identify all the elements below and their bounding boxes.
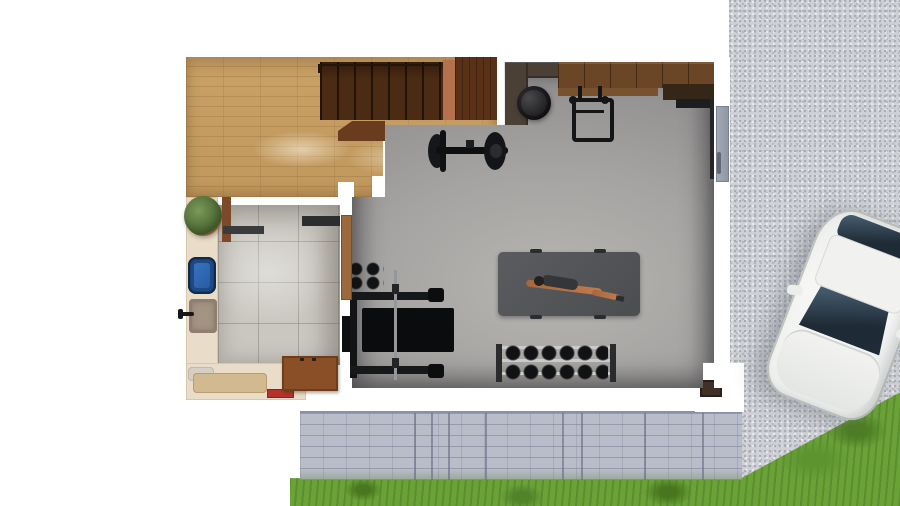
bench-press-station bbox=[342, 262, 457, 387]
staircase bbox=[320, 62, 443, 120]
rack-knob bbox=[601, 96, 609, 104]
basin-inner bbox=[191, 260, 213, 291]
mat-handle bbox=[530, 249, 542, 253]
cabinet-handle bbox=[300, 358, 304, 361]
wood-wall-post bbox=[341, 215, 352, 300]
wall-gap-patch bbox=[372, 176, 384, 197]
faucet-knob bbox=[178, 309, 183, 319]
car-mirror-right bbox=[894, 327, 900, 344]
wood-wall-post bbox=[222, 197, 231, 242]
retaining-wall bbox=[300, 411, 742, 480]
wall-gap-patch bbox=[338, 182, 354, 198]
towel-mat bbox=[193, 373, 267, 393]
wall-seam bbox=[485, 413, 487, 480]
rack-post bbox=[610, 344, 616, 382]
barbell-collar bbox=[392, 284, 399, 294]
bike-seat bbox=[490, 144, 502, 158]
person-head bbox=[534, 276, 544, 286]
wall-seam bbox=[644, 413, 646, 480]
stair-handrail bbox=[318, 64, 442, 66]
stair-handrail-post bbox=[318, 64, 321, 73]
wall-seam bbox=[562, 413, 564, 480]
rack-post bbox=[496, 344, 502, 382]
wall-seam bbox=[581, 413, 583, 480]
gym-cabinet-dark-end bbox=[663, 84, 715, 100]
small-dumbbells bbox=[348, 262, 384, 290]
upper-dark-wood-floor bbox=[455, 57, 497, 120]
j-hook bbox=[428, 288, 444, 302]
rack-knob bbox=[569, 96, 577, 104]
floor-plan-canvas bbox=[0, 0, 900, 506]
stair-copper-strip bbox=[443, 60, 455, 120]
wall-mounted-rack bbox=[570, 86, 610, 136]
wall-seam bbox=[431, 413, 433, 480]
cabinet-handle bbox=[312, 358, 316, 361]
rack-bar bbox=[576, 110, 604, 113]
wood-cabinet bbox=[282, 356, 338, 391]
barbell-collar bbox=[392, 358, 399, 368]
j-hook bbox=[428, 364, 444, 378]
wall-shelf bbox=[302, 216, 340, 226]
mat-handle bbox=[594, 249, 606, 253]
mat-handle bbox=[530, 315, 542, 319]
bike-pedal bbox=[466, 140, 474, 148]
bench-pad bbox=[362, 308, 454, 352]
dumbbells bbox=[504, 344, 608, 382]
person-foot bbox=[616, 295, 625, 302]
potted-plant bbox=[184, 196, 222, 236]
exercise-ball bbox=[517, 86, 551, 120]
door-handle bbox=[717, 152, 721, 174]
wall-seam bbox=[448, 413, 450, 480]
wash-sink bbox=[189, 299, 217, 333]
wall-seam bbox=[414, 413, 416, 480]
dumbbell-rack bbox=[496, 344, 616, 382]
wall-shelf bbox=[223, 226, 264, 234]
wall-seam bbox=[702, 413, 704, 480]
exercise-mat bbox=[498, 252, 640, 316]
mat-handle bbox=[594, 315, 606, 319]
weight-plate-bar bbox=[342, 316, 350, 352]
car-mirror-left bbox=[787, 284, 804, 296]
exercise-bike bbox=[426, 130, 516, 172]
blue-basin bbox=[188, 257, 216, 294]
rack-frame bbox=[572, 98, 614, 142]
